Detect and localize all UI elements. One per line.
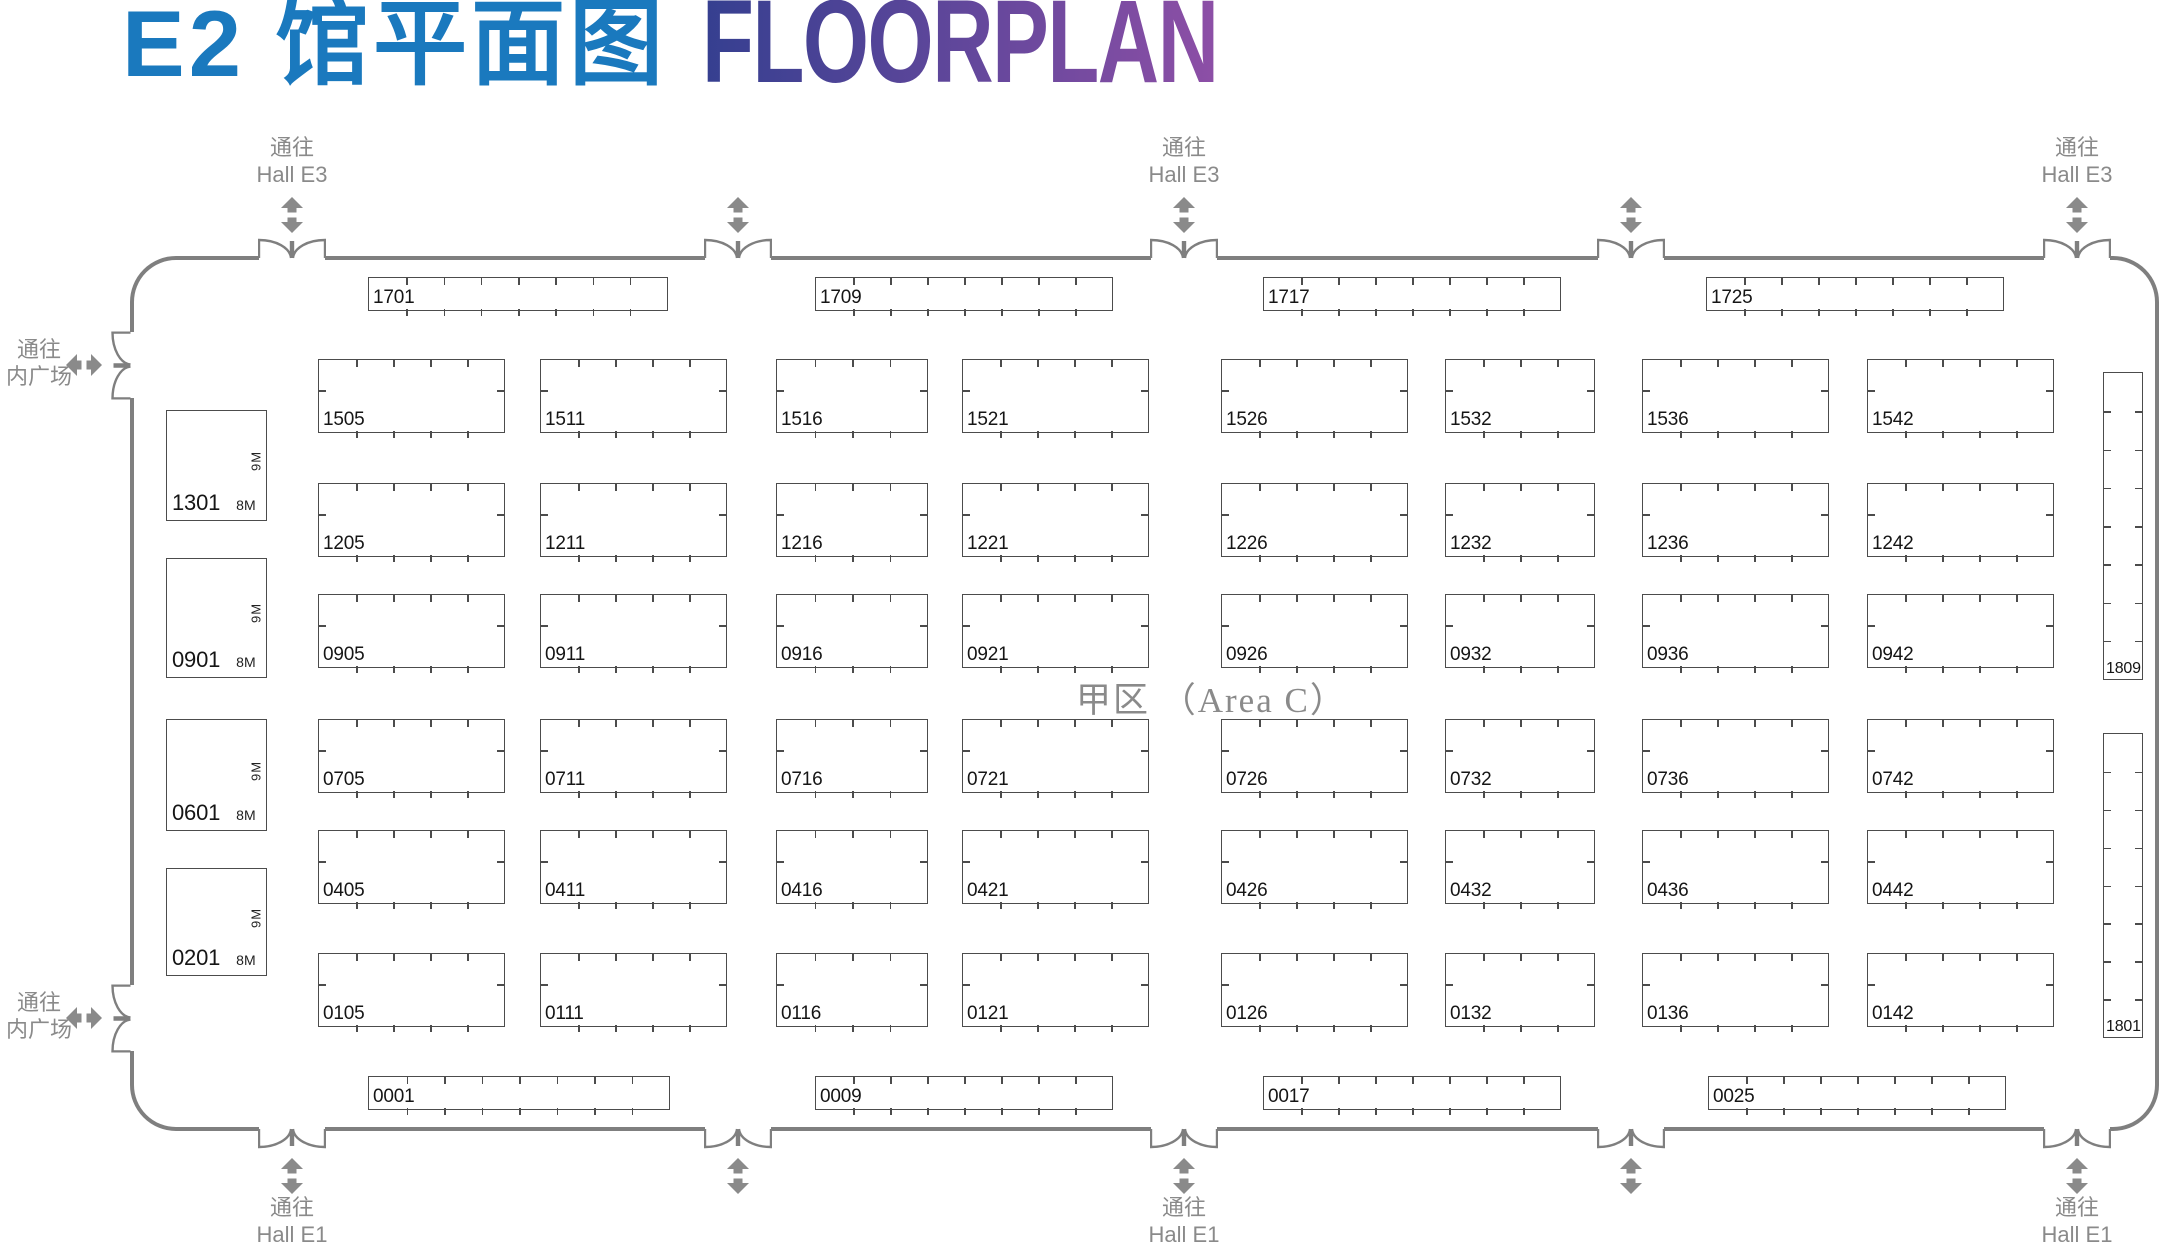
subdivision-tick: [1370, 359, 1372, 367]
subdivision-tick: [430, 431, 432, 438]
booth-label-row: 06018M: [172, 800, 256, 826]
subdivision-tick: [920, 861, 928, 863]
subdivision-tick: [1038, 1076, 1040, 1084]
subdivision-tick: [689, 594, 691, 602]
subdivision-tick: [1929, 277, 1931, 285]
subdivision-tick: [776, 984, 784, 986]
booth-0432: 0432: [1445, 830, 1595, 904]
subdivision-tick: [467, 555, 469, 562]
subdivision-tick: [1370, 719, 1372, 727]
subdivision-tick: [393, 594, 395, 602]
subdivision-tick: [1642, 984, 1650, 986]
subdivision-tick: [1445, 750, 1453, 752]
subdivision-tick: [1000, 483, 1002, 491]
door-symbol: [704, 1128, 772, 1151]
booth-label: 1226: [1226, 533, 1267, 555]
subdivision-tick: [2135, 923, 2143, 925]
subdivision-tick: [1259, 431, 1261, 438]
subdivision-tick: [1892, 277, 1894, 285]
subdivision-tick: [1791, 830, 1793, 838]
subdivision-tick: [467, 719, 469, 727]
booth-label: 0732: [1450, 769, 1491, 791]
subdivision-tick: [578, 1025, 580, 1032]
subdivision-tick: [578, 666, 580, 673]
subdivision-tick: [356, 719, 358, 727]
booth-0421: 0421: [962, 830, 1149, 904]
subdivision-tick: [1111, 1025, 1113, 1032]
subdivision-tick: [407, 1076, 409, 1084]
subdivision-tick: [2135, 564, 2143, 566]
subdivision-tick: [1038, 277, 1040, 285]
subdivision-tick: [393, 953, 395, 961]
booth-0416: 0416: [776, 830, 928, 904]
booth-0901: 09018M9M: [166, 558, 267, 678]
booth-label: 0932: [1450, 644, 1491, 666]
booth-label: 0905: [323, 644, 364, 666]
subdivision-tick: [1818, 309, 1820, 316]
subdivision-tick: [652, 791, 654, 798]
subdivision-tick: [2016, 431, 2018, 438]
booth-label-row: 1232: [1450, 533, 1491, 555]
subdivision-tick: [632, 1108, 634, 1115]
subdivision-tick: [1905, 719, 1907, 727]
subdivision-tick: [615, 555, 617, 562]
subdivision-tick: [430, 791, 432, 798]
booth-0721: 0721: [962, 719, 1149, 793]
booth-0142: 0142: [1867, 953, 2054, 1027]
subdivision-tick: [1221, 750, 1229, 752]
subdivision-tick: [689, 719, 691, 727]
subdivision-tick: [1929, 309, 1931, 316]
subdivision-tick: [1587, 514, 1595, 516]
booth-label: 0921: [967, 644, 1008, 666]
subdivision-tick: [2103, 810, 2111, 812]
booth-label: 0426: [1226, 880, 1267, 902]
subdivision-tick: [1680, 359, 1682, 367]
booth-size-label: 8M: [236, 807, 255, 823]
subdivision-tick: [962, 514, 970, 516]
subdivision-tick: [1717, 594, 1719, 602]
subdivision-tick: [890, 1076, 892, 1084]
subdivision-tick: [2016, 483, 2018, 491]
subdivision-tick: [2046, 514, 2054, 516]
booth-label-row: 0405: [323, 880, 364, 902]
subdivision-tick: [1717, 719, 1719, 727]
subdivision-tick: [1296, 483, 1298, 491]
subdivision-tick: [1037, 719, 1039, 727]
area-c-label: 甲区 （Area C）: [1076, 672, 1347, 723]
subdivision-tick: [652, 555, 654, 562]
subdivision-tick: [430, 483, 432, 491]
subdivision-tick: [1483, 359, 1485, 367]
subdivision-tick: [467, 483, 469, 491]
subdivision-tick: [1942, 1025, 1944, 1032]
subdivision-tick: [1333, 902, 1335, 909]
subdivision-tick: [1942, 830, 1944, 838]
subdivision-tick: [467, 666, 469, 673]
subdivision-tick: [555, 277, 557, 285]
booth-label: 0132: [1450, 1003, 1491, 1025]
booth-0126: 0126: [1221, 953, 1408, 1027]
subdivision-tick: [578, 902, 580, 909]
booth-0017: 0017: [1263, 1076, 1561, 1110]
booth-1526: 1526: [1221, 359, 1408, 433]
subdivision-tick: [1111, 431, 1113, 438]
subdivision-tick: [1642, 861, 1650, 863]
subdivision-tick: [1483, 902, 1485, 909]
subdivision-tick: [1037, 1025, 1039, 1032]
subdivision-tick: [815, 830, 817, 838]
booth-label-row: 0905: [323, 644, 364, 666]
subdivision-tick: [1074, 953, 1076, 961]
subdivision-tick: [2016, 1025, 2018, 1032]
booth-label-row: 1226: [1226, 533, 1267, 555]
subdivision-tick: [2016, 719, 2018, 727]
subdivision-tick: [1942, 953, 1944, 961]
booth-label-row: 0416: [781, 880, 822, 902]
subdivision-tick: [1680, 719, 1682, 727]
subdivision-tick: [356, 555, 358, 562]
subdivision-tick: [1557, 1025, 1559, 1032]
booth-label-row: 0726: [1226, 769, 1267, 791]
subdivision-tick: [497, 625, 505, 627]
subdivision-tick: [1754, 483, 1756, 491]
subdivision-tick: [1680, 431, 1682, 438]
booth-label-row: 0136: [1647, 1003, 1688, 1025]
subdivision-tick: [1754, 953, 1756, 961]
subdivision-tick: [1905, 359, 1907, 367]
subdivision-tick: [1717, 555, 1719, 562]
subdivision-tick: [1520, 666, 1522, 673]
subdivision-tick: [890, 483, 892, 491]
booth-label: 1536: [1647, 409, 1688, 431]
booth-label: 0411: [545, 880, 585, 902]
subdivision-tick: [1642, 750, 1650, 752]
subdivision-tick: [852, 1025, 854, 1032]
booth-label-row: 0926: [1226, 644, 1267, 666]
subdivision-tick: [1680, 830, 1682, 838]
subdivision-tick: [1717, 483, 1719, 491]
booth-label-row: 0421: [967, 880, 1008, 902]
subdivision-tick: [652, 483, 654, 491]
subdivision-tick: [356, 431, 358, 438]
subdivision-tick: [1111, 594, 1113, 602]
subdivision-tick: [1370, 666, 1372, 673]
subdivision-tick: [1259, 594, 1261, 602]
subdivision-tick: [1296, 953, 1298, 961]
subdivision-tick: [2016, 902, 2018, 909]
subdivision-tick: [1333, 431, 1335, 438]
booth-label: 1701: [373, 287, 414, 309]
subdivision-tick: [497, 861, 505, 863]
booth-label: 0711: [545, 769, 585, 791]
subdivision-tick: [430, 594, 432, 602]
subdivision-tick: [927, 277, 929, 285]
subdivision-tick: [1791, 555, 1793, 562]
booth-label: 1542: [1872, 409, 1913, 431]
subdivision-tick: [318, 984, 326, 986]
passage-arrow-icon: [726, 197, 750, 233]
subdivision-tick: [1400, 750, 1408, 752]
subdivision-tick: [393, 555, 395, 562]
booth-label: 0916: [781, 644, 822, 666]
subdivision-tick: [1001, 1076, 1003, 1084]
subdivision-tick: [356, 359, 358, 367]
subdivision-tick: [1111, 902, 1113, 909]
subdivision-tick: [632, 1076, 634, 1084]
subdivision-tick: [1141, 390, 1149, 392]
subdivision-tick: [593, 309, 595, 316]
subdivision-tick: [497, 390, 505, 392]
booth-size-label: 8M: [236, 497, 255, 513]
subdivision-tick: [1867, 390, 1875, 392]
subdivision-tick: [1680, 555, 1682, 562]
passage-arrow-icon: [726, 1158, 750, 1194]
subdivision-tick: [1894, 1076, 1896, 1084]
booth-label: 1211: [545, 533, 585, 555]
booth-label-row: 0411: [545, 880, 585, 902]
subdivision-tick: [1111, 953, 1113, 961]
subdivision-tick: [1867, 514, 1875, 516]
subdivision-tick: [615, 953, 617, 961]
subdivision-tick: [497, 514, 505, 516]
booth-label: 1809: [2106, 660, 2141, 678]
booth-0926: 0926: [1221, 594, 1408, 668]
subdivision-tick: [1375, 1108, 1377, 1115]
subdivision-tick: [1979, 791, 1981, 798]
booth-label-row: 0916: [781, 644, 822, 666]
passage-arrow-icon: [2065, 1158, 2089, 1194]
booth-size-label: 8M: [236, 952, 255, 968]
subdivision-tick: [1296, 359, 1298, 367]
subdivision-tick: [1821, 625, 1829, 627]
subdivision-tick: [652, 719, 654, 727]
subdivision-tick: [853, 1108, 855, 1115]
subdivision-tick: [578, 830, 580, 838]
booth-label: 1216: [781, 533, 822, 555]
subdivision-tick: [2103, 772, 2111, 774]
subdivision-tick: [1037, 791, 1039, 798]
subdivision-tick: [1942, 555, 1944, 562]
subdivision-tick: [467, 1025, 469, 1032]
booth-label-row: 0721: [967, 769, 1008, 791]
subdivision-tick: [1483, 1025, 1485, 1032]
subdivision-tick: [1296, 555, 1298, 562]
subdivision-tick: [1400, 861, 1408, 863]
booth-0116: 0116: [776, 953, 928, 1027]
booth-0726: 0726: [1221, 719, 1408, 793]
subdivision-tick: [719, 390, 727, 392]
subdivision-tick: [407, 1108, 409, 1115]
subdivision-tick: [1000, 359, 1002, 367]
booth-label-row: 1701: [373, 287, 414, 309]
subdivision-tick: [1075, 277, 1077, 285]
subdivision-tick: [1754, 791, 1756, 798]
subdivision-tick: [2135, 886, 2143, 888]
subdivision-tick: [853, 277, 855, 285]
subdivision-tick: [927, 309, 929, 316]
subdivision-tick: [1445, 984, 1453, 986]
subdivision-tick: [1141, 984, 1149, 986]
passage-label-line: Hall E1: [212, 1221, 372, 1248]
subdivision-tick: [2103, 488, 2111, 490]
subdivision-tick: [578, 483, 580, 491]
subdivision-tick: [1449, 309, 1451, 316]
booth-0442: 0442: [1867, 830, 2054, 904]
booth-1242: 1242: [1867, 483, 2054, 557]
booth-1505: 1505: [318, 359, 505, 433]
subdivision-tick: [540, 984, 548, 986]
subdivision-tick: [890, 555, 892, 562]
subdivision-tick: [1400, 984, 1408, 986]
subdivision-tick: [1867, 861, 1875, 863]
subdivision-tick: [481, 309, 483, 316]
subdivision-tick: [1821, 861, 1829, 863]
subdivision-tick: [444, 277, 446, 285]
subdivision-tick: [776, 390, 784, 392]
subdivision-tick: [630, 309, 632, 316]
passage-label: 通往Hall E3: [1997, 134, 2157, 188]
subdivision-tick: [1111, 483, 1113, 491]
subdivision-tick: [1791, 359, 1793, 367]
subdivision-tick: [920, 625, 928, 627]
subdivision-tick: [1857, 1076, 1859, 1084]
booth-depth-label: 9M: [248, 761, 263, 781]
subdivision-tick: [852, 719, 854, 727]
subdivision-tick: [594, 1108, 596, 1115]
subdivision-tick: [1966, 277, 1968, 285]
booth-label-row: 0911: [545, 644, 585, 666]
subdivision-tick: [815, 666, 817, 673]
subdivision-tick: [852, 359, 854, 367]
subdivision-tick: [1075, 309, 1077, 316]
booth-label-row: 1717: [1268, 287, 1309, 309]
passage-label-line: 通往: [0, 336, 78, 363]
subdivision-tick: [1781, 277, 1783, 285]
subdivision-tick: [1791, 666, 1793, 673]
passage-label-line: Hall E3: [212, 161, 372, 188]
subdivision-tick: [1037, 431, 1039, 438]
subdivision-tick: [1520, 719, 1522, 727]
booth-depth-label: 9M: [248, 908, 263, 928]
passage-label-line: 通往: [212, 134, 372, 161]
booth-1226: 1226: [1221, 483, 1408, 557]
booth-label-row: 1536: [1647, 409, 1688, 431]
subdivision-tick: [2103, 961, 2111, 963]
booth-0905: 0905: [318, 594, 505, 668]
subdivision-tick: [2046, 861, 2054, 863]
subdivision-tick: [1744, 309, 1746, 316]
subdivision-tick: [1141, 625, 1149, 627]
subdivision-tick: [1821, 750, 1829, 752]
door-symbol: [1597, 236, 1665, 259]
subdivision-tick: [1221, 625, 1229, 627]
passage-label-line: 通往: [1104, 134, 1264, 161]
subdivision-tick: [1754, 666, 1756, 673]
subdivision-tick: [719, 984, 727, 986]
booth-label: 0017: [1268, 1086, 1309, 1108]
passage-label-line: 通往: [212, 1194, 372, 1221]
subdivision-tick: [430, 666, 432, 673]
subdivision-tick: [594, 1076, 596, 1084]
booth-0405: 0405: [318, 830, 505, 904]
subdivision-tick: [1520, 1025, 1522, 1032]
booth-label: 0009: [820, 1086, 861, 1108]
subdivision-tick: [1931, 1108, 1933, 1115]
subdivision-tick: [815, 483, 817, 491]
subdivision-tick: [890, 594, 892, 602]
booth-1709: 1709: [815, 277, 1113, 311]
subdivision-tick: [1449, 1076, 1451, 1084]
booth-0936: 0936: [1642, 594, 1829, 668]
booth-0136: 0136: [1642, 953, 1829, 1027]
subdivision-tick: [482, 1108, 484, 1115]
booth-label-row: 0936: [1647, 644, 1688, 666]
subdivision-tick: [652, 594, 654, 602]
subdivision-tick: [890, 902, 892, 909]
subdivision-tick: [1370, 791, 1372, 798]
subdivision-tick: [1141, 750, 1149, 752]
subdivision-tick: [1520, 902, 1522, 909]
subdivision-tick: [1000, 1025, 1002, 1032]
subdivision-tick: [1333, 555, 1335, 562]
subdivision-tick: [890, 1108, 892, 1115]
floorplan-page: { "title": { "zh": "E2 馆平面图", "en": "FLO…: [0, 0, 2171, 1241]
subdivision-tick: [962, 390, 970, 392]
subdivision-tick: [1333, 594, 1335, 602]
booth-0426: 0426: [1221, 830, 1408, 904]
passage-label: 通往Hall E1: [1104, 1194, 1264, 1248]
subdivision-tick: [1370, 902, 1372, 909]
booth-label-row: 0105: [323, 1003, 364, 1025]
subdivision-tick: [890, 953, 892, 961]
subdivision-tick: [1301, 277, 1303, 285]
subdivision-tick: [540, 625, 548, 627]
door-symbol: [704, 236, 772, 259]
booth-label: 0136: [1647, 1003, 1688, 1025]
subdivision-tick: [652, 830, 654, 838]
subdivision-tick: [2135, 810, 2143, 812]
subdivision-tick: [557, 1108, 559, 1115]
booth-label: 0001: [373, 1086, 414, 1108]
booth-label: 0405: [323, 880, 364, 902]
subdivision-tick: [1111, 359, 1113, 367]
booth-label-row: 0705: [323, 769, 364, 791]
subdivision-tick: [1370, 555, 1372, 562]
subdivision-tick: [1111, 555, 1113, 562]
door-symbol: [258, 1128, 326, 1151]
subdivision-tick: [578, 953, 580, 961]
subdivision-tick: [1301, 309, 1303, 316]
subdivision-tick: [1754, 1025, 1756, 1032]
booth-label-row: 0742: [1872, 769, 1913, 791]
passage-label: 通往内广场: [0, 989, 78, 1043]
subdivision-tick: [1523, 277, 1525, 285]
subdivision-tick: [1781, 309, 1783, 316]
booth-label: 0416: [781, 880, 822, 902]
subdivision-tick: [356, 666, 358, 673]
subdivision-tick: [1000, 953, 1002, 961]
booth-label: 0936: [1647, 644, 1688, 666]
subdivision-tick: [1905, 483, 1907, 491]
booth-1809: 1809: [2103, 372, 2143, 680]
booth-label-row: 1205: [323, 533, 364, 555]
subdivision-tick: [1905, 666, 1907, 673]
booth-1532: 1532: [1445, 359, 1595, 433]
subdivision-tick: [1520, 594, 1522, 602]
subdivision-tick: [1074, 830, 1076, 838]
subdivision-tick: [1375, 309, 1377, 316]
